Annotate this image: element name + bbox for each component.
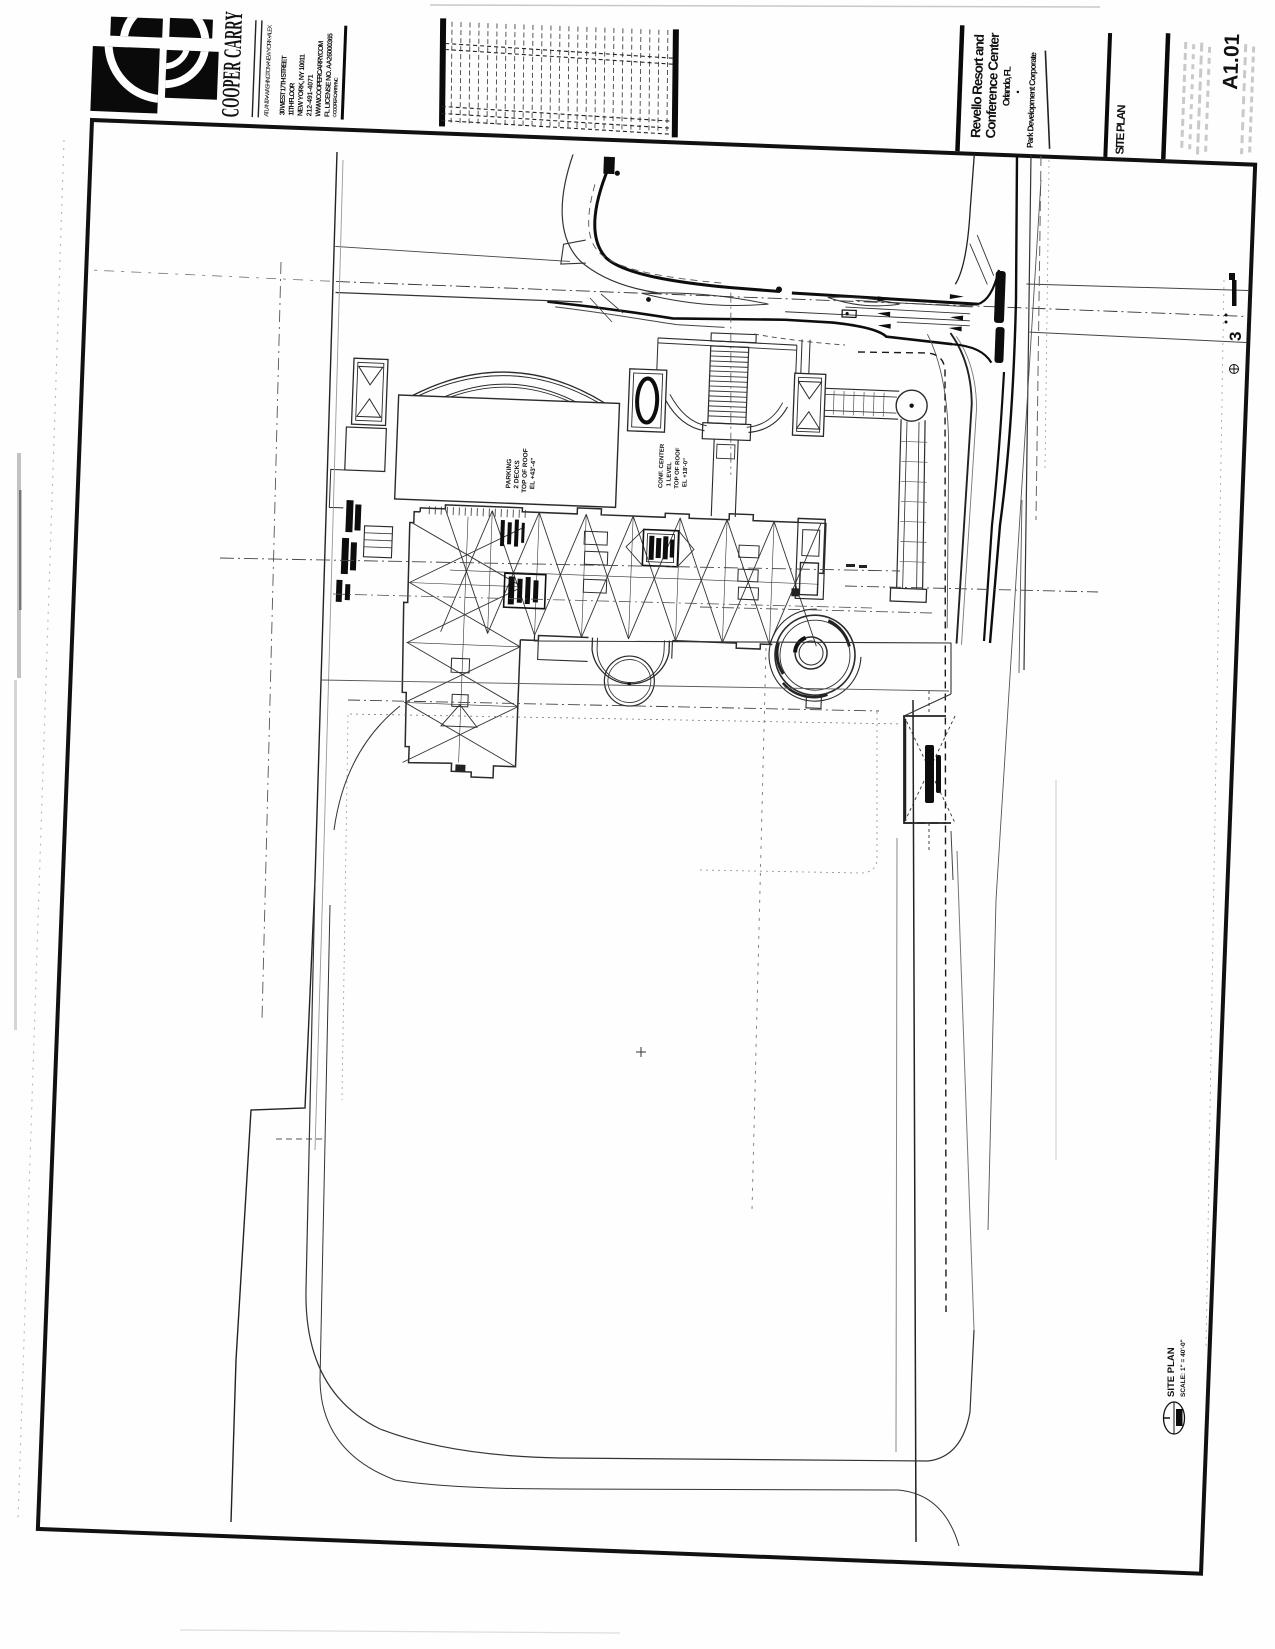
svg-text:11TH FLOOR: 11TH FLOOR xyxy=(288,83,296,116)
svg-text:Orlando, FL: Orlando, FL xyxy=(1001,66,1014,107)
svg-text:COOPER CARRY: COOPER CARRY xyxy=(217,11,248,118)
svg-text:SITE PLAN: SITE PLAN xyxy=(1114,104,1128,154)
svg-text:3: 3 xyxy=(1226,332,1245,341)
svg-text:EL +18'-0": EL +18'-0" xyxy=(682,458,689,487)
svg-text:1 LEVEL: 1 LEVEL xyxy=(666,462,673,487)
svg-text:2 DECKS: 2 DECKS xyxy=(513,460,521,489)
svg-text:EL +43'-4": EL +43'-4" xyxy=(529,458,537,490)
svg-text:PARKING: PARKING xyxy=(505,459,513,489)
svg-text:SCALE: 1" = 40'-0": SCALE: 1" = 40'-0" xyxy=(1180,1339,1187,1397)
svg-text:A1.01: A1.01 xyxy=(1219,33,1244,90)
svg-text:•: • xyxy=(1013,90,1023,94)
svg-text:SITE PLAN: SITE PLAN xyxy=(1166,1347,1177,1397)
